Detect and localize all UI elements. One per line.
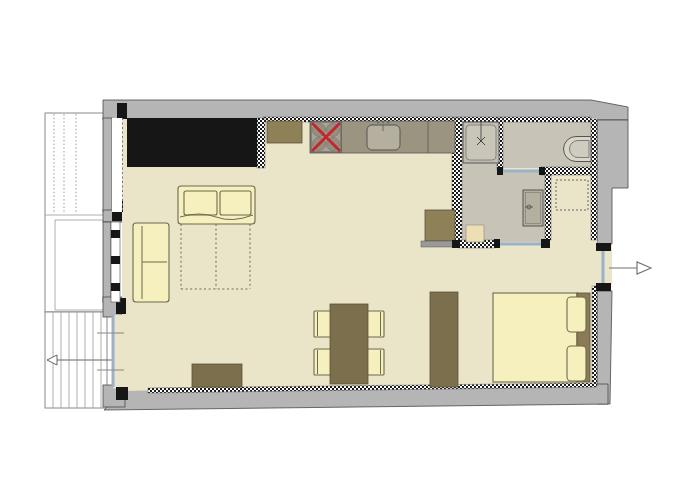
- entrance-marker: [609, 262, 651, 274]
- laundry-box: [466, 225, 484, 242]
- washbasin-vanity-icon: [523, 190, 543, 226]
- door-jamb: [539, 167, 545, 175]
- kitchen-fridge-cabinet: [425, 210, 455, 241]
- door-jamb: [497, 167, 503, 175]
- balcony: [45, 113, 107, 312]
- wall-right-upper: [597, 120, 628, 244]
- dining-chair: [314, 349, 331, 375]
- tall-cabinet: [430, 292, 458, 387]
- shower-icon: [463, 122, 499, 163]
- wall-lining-right-upper: [591, 119, 597, 240]
- wc-room: [564, 137, 592, 162]
- sleeping-area: [493, 293, 590, 382]
- sofa-cushion: [184, 191, 217, 215]
- door-jamb: [494, 239, 500, 248]
- two-seat-sofa: [133, 223, 169, 302]
- wall-lining-bedroom-right: [592, 286, 597, 385]
- toilet-icon: [564, 137, 592, 162]
- pillow: [567, 346, 586, 381]
- floor-plan-svg: [0, 0, 700, 500]
- entrance-arrow-right-icon: [637, 262, 651, 274]
- black-wardrobe: [127, 118, 257, 167]
- entrance-door-jamb: [596, 283, 611, 291]
- balcony-outline: [45, 113, 107, 312]
- door-jamb: [541, 239, 550, 248]
- dining-chair: [367, 349, 384, 375]
- wall-wc-bottom: [541, 167, 592, 175]
- kitchen-cabinet-base: [421, 241, 455, 247]
- double-bed: [493, 293, 577, 382]
- cooktop-icon: [311, 122, 341, 152]
- wall-end-block: [452, 240, 460, 248]
- sofa-cushion: [220, 191, 251, 215]
- kitchen-base-cabinet: [267, 121, 302, 143]
- floor-plan-page: [0, 0, 700, 500]
- wall-closet-left: [545, 175, 551, 240]
- wall-left-band-mid: [103, 222, 111, 302]
- entrance-door-jamb: [596, 243, 611, 251]
- wall-pier-wardrobe: [257, 118, 265, 168]
- sideboard: [192, 364, 242, 387]
- wall-left-band-upper: [103, 118, 112, 212]
- pillow: [567, 297, 586, 332]
- dining-chair: [314, 311, 331, 337]
- dining-chair: [367, 311, 384, 337]
- dining-table: [330, 304, 368, 384]
- kitchen-sink-icon: [367, 121, 400, 150]
- window-glazing-channel: [112, 118, 122, 212]
